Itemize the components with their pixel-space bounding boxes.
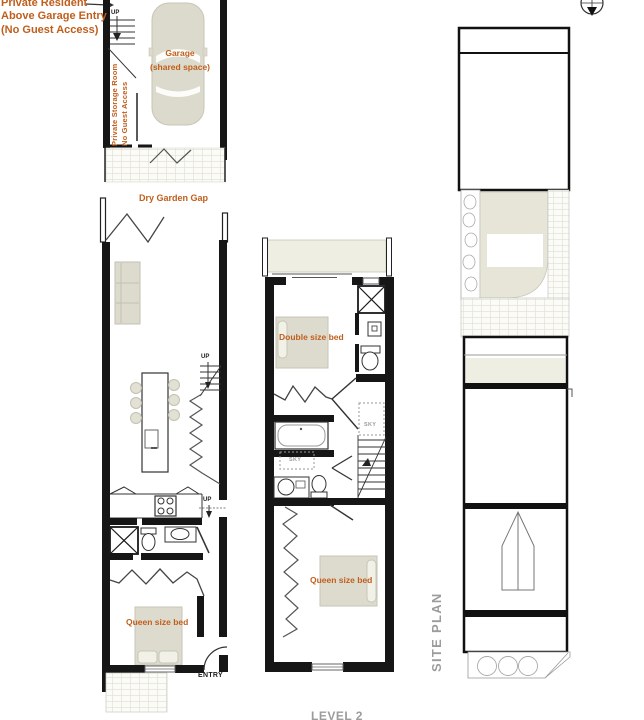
terrace bbox=[266, 240, 386, 272]
kitchen-up-label: UP bbox=[203, 497, 211, 504]
basin bbox=[165, 527, 196, 542]
sky-stairs-label: SKY bbox=[364, 422, 376, 428]
site-plan bbox=[459, 0, 603, 678]
north-compass-icon bbox=[581, 0, 603, 16]
note-line-1: Private Resident bbox=[1, 0, 87, 10]
entry-label: ENTRY bbox=[198, 672, 223, 680]
living-plan bbox=[101, 198, 229, 712]
stairs-up-label: UP bbox=[201, 354, 209, 361]
garage-plan bbox=[86, 0, 227, 182]
queen-bed-living-label: Queen size bed bbox=[126, 618, 188, 628]
break-line bbox=[190, 394, 220, 484]
stairs-up bbox=[200, 362, 221, 396]
toilet-upper bbox=[361, 346, 380, 370]
break-line bbox=[106, 214, 164, 242]
robe-closet bbox=[358, 286, 385, 313]
toilet bbox=[141, 528, 156, 551]
break-line bbox=[110, 569, 204, 596]
skylight-outline bbox=[359, 403, 384, 435]
stairs-mid bbox=[358, 435, 386, 498]
level-label: LEVEL 2 bbox=[311, 710, 363, 720]
note-line-2: Above Garage Entry bbox=[1, 10, 107, 23]
storage-robe bbox=[110, 527, 138, 554]
vanity bbox=[368, 322, 381, 336]
floorplan-sheet: Private Resident Above Garage Entry (No … bbox=[0, 0, 644, 720]
garage-forecourt-paving bbox=[106, 148, 225, 182]
note-line-3: (No Guest Access) bbox=[1, 24, 98, 37]
bathtub bbox=[275, 422, 328, 449]
break-line bbox=[274, 386, 332, 402]
plan-linework bbox=[0, 0, 644, 720]
queen-bed-upper-label: Queen size bed bbox=[310, 576, 372, 586]
garage-sublabel: (shared space) bbox=[139, 63, 221, 73]
sofa bbox=[115, 262, 140, 324]
sky-bath-label: SKY bbox=[289, 457, 301, 463]
street-trees bbox=[478, 657, 538, 676]
storage-label-line1: Private Storage Room bbox=[110, 64, 120, 146]
window bbox=[363, 278, 379, 284]
kitchen-counter bbox=[110, 487, 202, 518]
garage-label: Garage bbox=[139, 49, 221, 59]
break-line bbox=[283, 507, 298, 637]
basin-lower bbox=[274, 477, 309, 498]
entry-paving bbox=[106, 673, 167, 712]
toilet-lower bbox=[311, 476, 327, 499]
bedroom-plan bbox=[263, 238, 395, 672]
storage-label-line2: No Guest Access bbox=[120, 64, 130, 146]
kitchen-island bbox=[131, 373, 180, 472]
dry-garden-gap-label: Dry Garden Gap bbox=[139, 193, 208, 203]
queen-bed-living bbox=[135, 607, 182, 665]
site-plan-title: SITE PLAN bbox=[430, 592, 445, 672]
garage-up-label: UP bbox=[111, 10, 119, 17]
double-bed-label: Double size bed bbox=[279, 333, 344, 343]
